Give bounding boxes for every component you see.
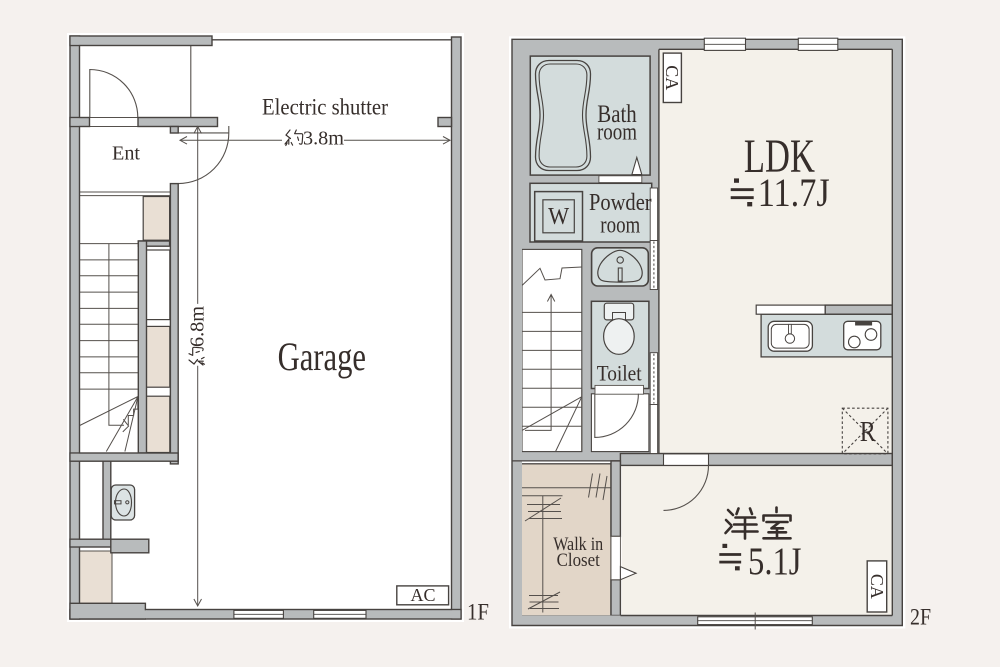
svg-text:room: room — [600, 213, 640, 239]
svg-text:Closet: Closet — [557, 550, 601, 571]
svg-text:Electric shutter: Electric shutter — [262, 95, 388, 120]
svg-text:11.7J: 11.7J — [758, 170, 830, 215]
svg-text:AC: AC — [411, 585, 436, 605]
svg-text:2F: 2F — [910, 605, 931, 630]
svg-text:Ent: Ent — [112, 143, 140, 165]
svg-text:Garage: Garage — [278, 334, 366, 379]
svg-text:R: R — [860, 416, 877, 448]
svg-text:5.1J: 5.1J — [748, 540, 802, 583]
svg-text:Toilet: Toilet — [597, 361, 642, 386]
svg-text:W: W — [548, 204, 569, 230]
svg-text:6.8m: 6.8m — [187, 306, 209, 347]
svg-text:CA: CA — [867, 574, 887, 599]
svg-text:1F: 1F — [467, 600, 489, 625]
svg-text:3.8m: 3.8m — [303, 128, 344, 150]
svg-text:room: room — [597, 120, 637, 146]
svg-text:CA: CA — [662, 65, 682, 90]
